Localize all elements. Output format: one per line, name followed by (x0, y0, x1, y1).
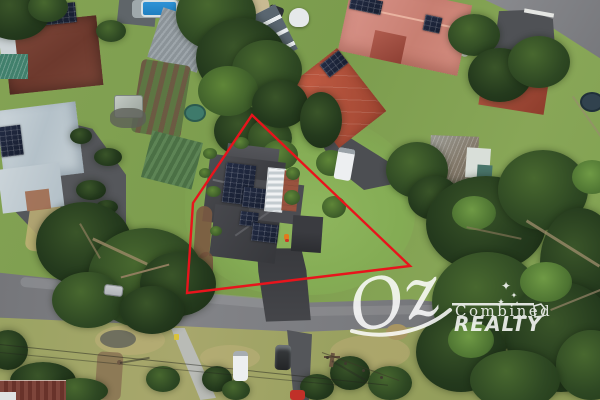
watermark-logo: Oz Combined REALTY ✦ ✦ ✦ ✦ (341, 250, 553, 349)
star-icon: ✦ (514, 300, 520, 308)
star-icon: ✦ (501, 279, 511, 293)
overlay-graphics: Oz Combined REALTY ✦ ✦ ✦ ✦ (0, 0, 600, 400)
star-icon: ✦ (497, 298, 505, 308)
star-icon: ✦ (511, 291, 518, 300)
watermark-realty-text: REALTY (454, 312, 544, 336)
aerial-property-photo: Oz Combined REALTY ✦ ✦ ✦ ✦ (0, 0, 600, 400)
